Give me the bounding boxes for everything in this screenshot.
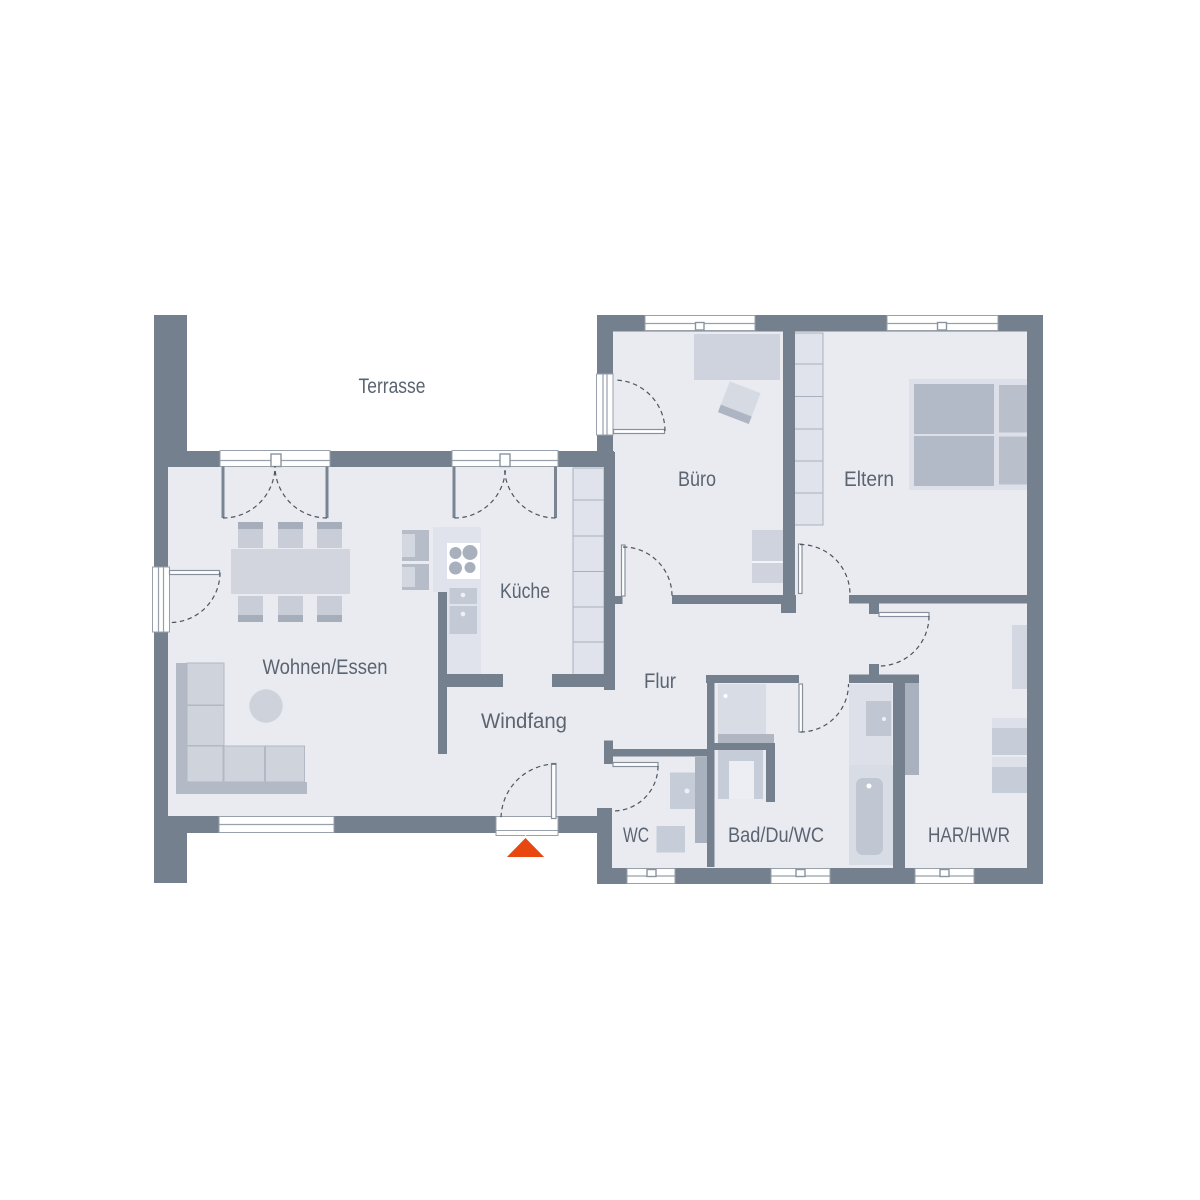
svg-text:Bad/Du/WC: Bad/Du/WC — [728, 823, 824, 847]
svg-text:HAR/HWR: HAR/HWR — [928, 823, 1010, 847]
svg-text:Terrasse: Terrasse — [359, 374, 426, 398]
svg-text:Windfang: Windfang — [481, 709, 567, 733]
svg-text:Wohnen/Essen: Wohnen/Essen — [263, 655, 388, 679]
svg-text:Flur: Flur — [644, 669, 676, 693]
svg-text:Küche: Küche — [500, 579, 550, 603]
svg-text:Büro: Büro — [678, 467, 716, 491]
svg-text:Eltern: Eltern — [844, 467, 894, 491]
svg-text:WC: WC — [623, 823, 649, 847]
